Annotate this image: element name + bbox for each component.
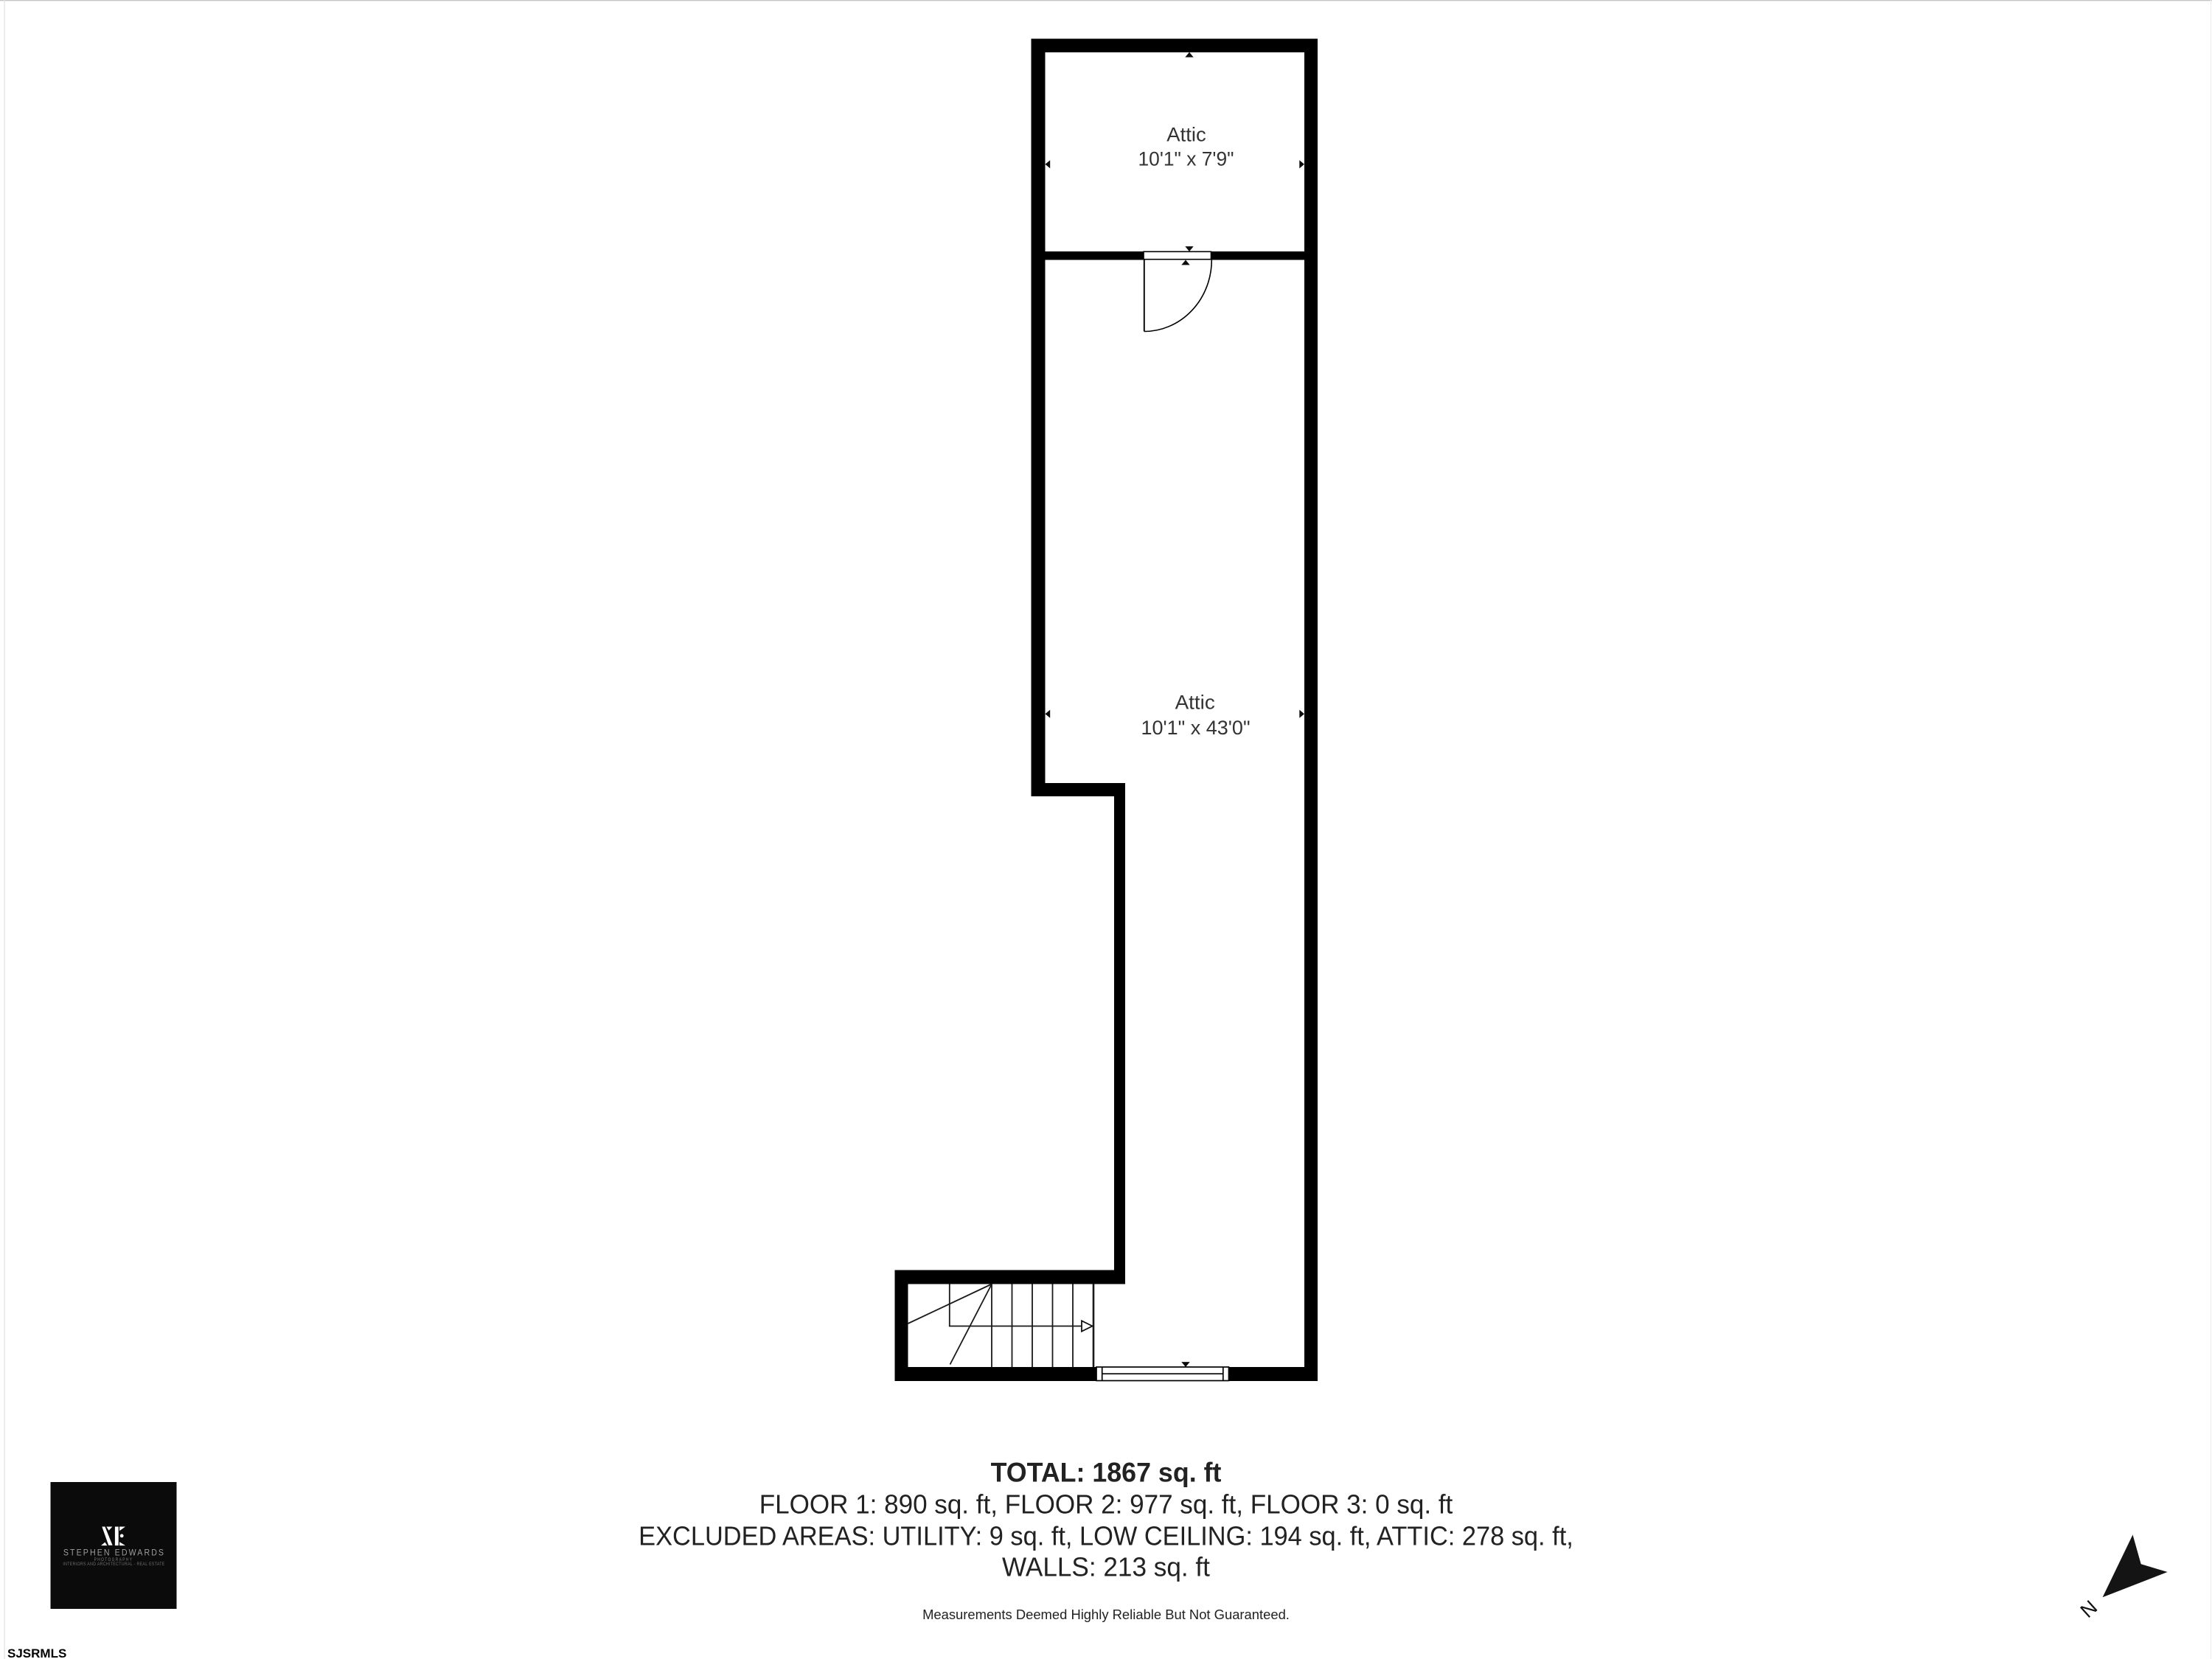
svg-text:EXCLUDED AREAS: UTILITY: 9 sq.: EXCLUDED AREAS: UTILITY: 9 sq. ft, LOW C…	[639, 1522, 1573, 1551]
svg-text:Measurements Deemed Highly Rel: Measurements Deemed Highly Reliable But …	[922, 1607, 1290, 1622]
svg-text:10'1" x 43'0": 10'1" x 43'0"	[1141, 717, 1250, 739]
svg-text:TOTAL: 1867 sq. ft: TOTAL: 1867 sq. ft	[991, 1457, 1222, 1488]
svg-text:Attic: Attic	[1175, 691, 1215, 714]
svg-text:FLOOR 1: 890 sq. ft, FLOOR 2:: FLOOR 1: 890 sq. ft, FLOOR 2: 977 sq. ft…	[759, 1489, 1453, 1520]
svg-text:WALLS: 213 sq. ft: WALLS: 213 sq. ft	[1002, 1552, 1210, 1582]
svg-text:Attic: Attic	[1166, 123, 1206, 146]
svg-text:10'1" x 7'9": 10'1" x 7'9"	[1138, 147, 1234, 170]
svg-text:STEPHEN EDWARDS: STEPHEN EDWARDS	[63, 1548, 165, 1558]
svg-text:SJSRMLS: SJSRMLS	[7, 1646, 66, 1659]
svg-text:INTERIORS AND ARCHITECTURAL -: INTERIORS AND ARCHITECTURAL - REAL ESTAT…	[63, 1562, 164, 1566]
